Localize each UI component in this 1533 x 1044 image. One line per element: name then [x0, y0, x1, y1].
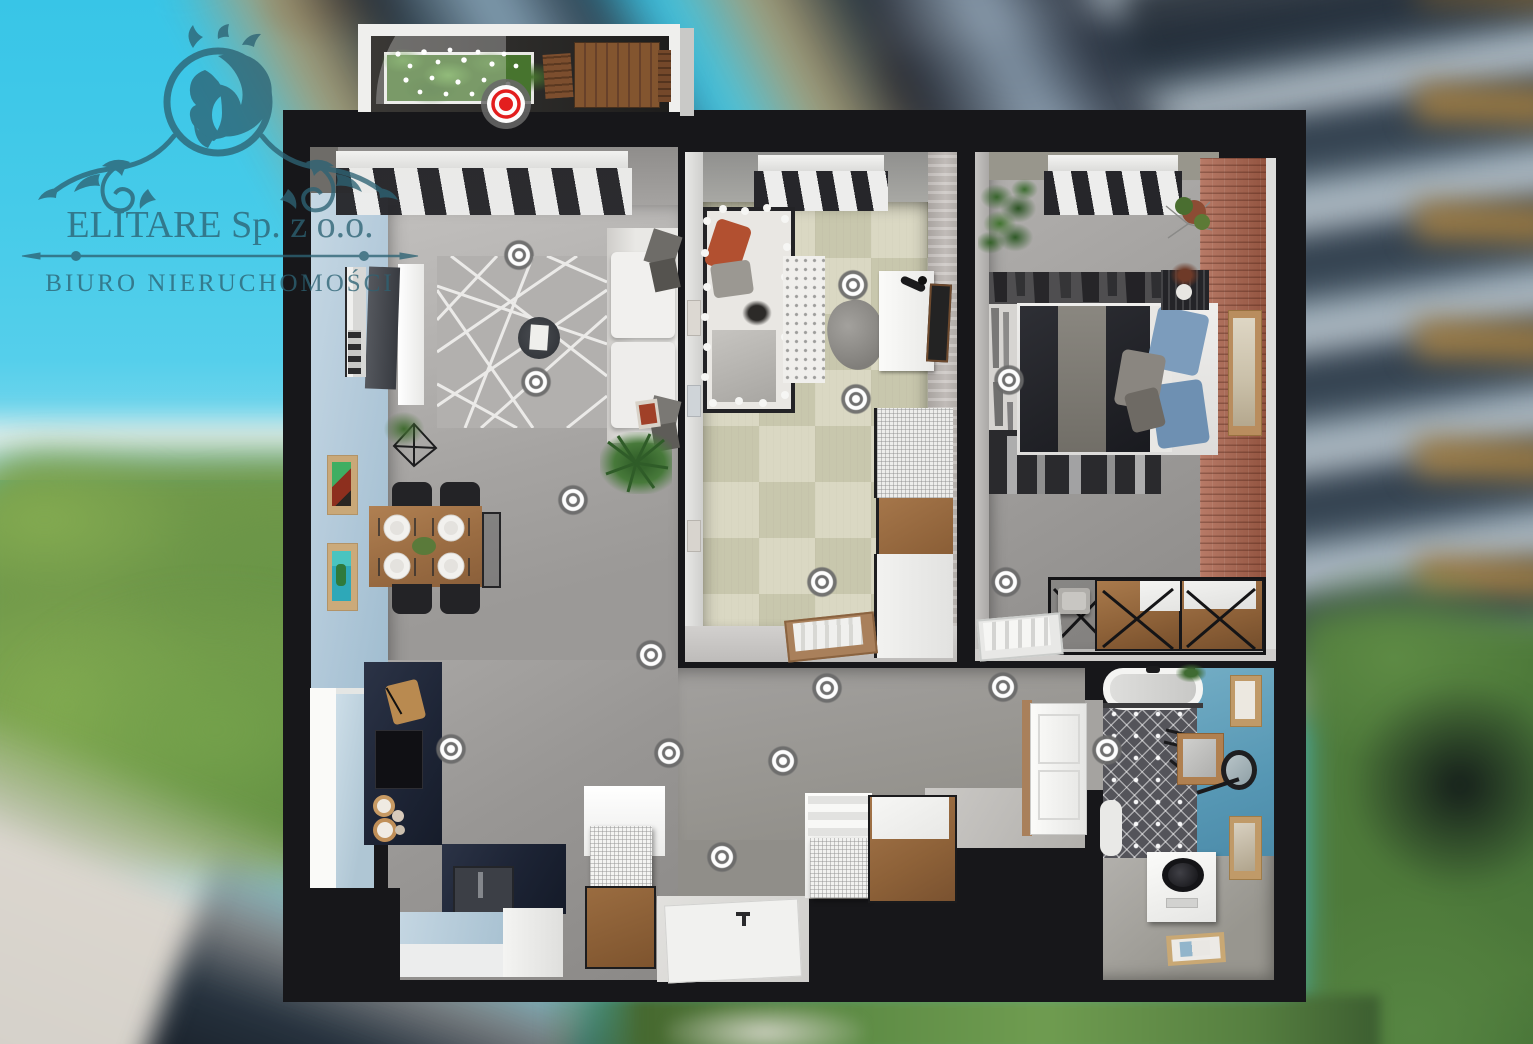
svg-text:BIURO NIERUCHOMOŚCI: BIURO NIERUCHOMOŚCI: [45, 269, 394, 297]
svg-text:ELITARE Sp. z o.o.: ELITARE Sp. z o.o.: [66, 204, 373, 246]
